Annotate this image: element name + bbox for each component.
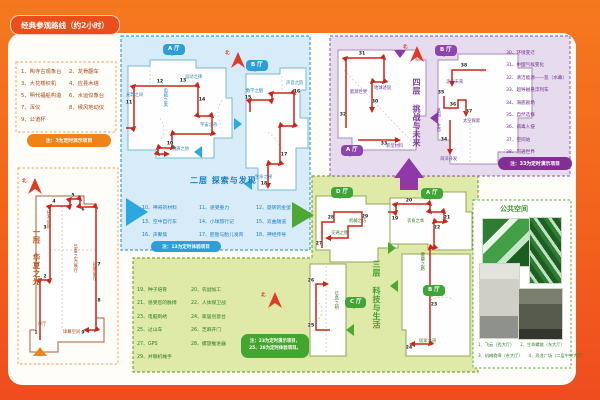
photo-dinosaur-skeleton — [479, 263, 520, 339]
route-stop-number: 13 — [180, 79, 186, 84]
floor4-hall-a-bubble: A 厅 — [341, 145, 363, 156]
route-stop-number: 19 — [392, 217, 398, 222]
public-space-title: 公共空间 — [500, 204, 528, 214]
floor4-exhibit-list: 30、环境变迁31、中国气候变化32、清洁能源——氢（水幕）33、超导磁悬浮列车… — [506, 50, 572, 162]
floor1-label-lobby: 序厅 — [38, 323, 47, 328]
list-item: 9、公道杯 — [21, 115, 69, 127]
floor1-label-temp: 短期展厅 — [91, 262, 96, 281]
list-item: 21、感受您的脉搏 — [137, 299, 191, 312]
list-item: 19、种子培育 — [137, 286, 191, 299]
list-item: 31、中国气候变化 — [506, 62, 572, 74]
route-stop-number: 37 — [466, 110, 472, 115]
floor3-area-transport: 交通之便 — [331, 232, 348, 237]
list-item: 34、海底剧场 — [506, 100, 572, 112]
route-stop-number: 14 — [199, 98, 205, 103]
list-item: 35、自然选择 — [506, 112, 572, 124]
route-stop-number: 35 — [438, 91, 444, 96]
floor2-area-matter: 物质之妙 — [172, 148, 189, 153]
floor3-title: 三层 科技与生活 — [371, 260, 382, 344]
caption-4: 4、恐龙广场（二层中央大厅） — [529, 353, 586, 359]
list-item: 18、神经传导 — [256, 231, 310, 245]
list-item: 13、空中自行车 — [142, 218, 199, 232]
floor3-area-info: 信息之桥 — [333, 291, 338, 310]
list-item: 4、应县木塔 — [69, 79, 114, 91]
route-stop-number: 30 — [372, 100, 378, 105]
floor4-title: 四层 挑战与未来 — [411, 78, 422, 170]
floor1-note-pill: 注：3为定时演示项目 — [27, 134, 111, 147]
list-item: 8、候风地动仪 — [69, 103, 114, 115]
route-stop-number: 29 — [362, 215, 368, 220]
list-item: 24、家居创意台 — [191, 313, 261, 326]
floor1-label-dome: 球幕空间 — [63, 331, 80, 336]
north-label: 北 — [403, 44, 408, 50]
floor3-note-pill: 注：23为定时演示项目， 25、28为定时体验项目。 — [241, 334, 309, 358]
route-stop-number: 23 — [431, 303, 437, 308]
list-item: 6、水运仪象台 — [69, 91, 114, 103]
list-item: 25、过山车 — [137, 326, 191, 339]
floor4-area-ocean: 海洋开发 — [440, 158, 457, 163]
floor4-area-materials: 新型材料 — [386, 145, 403, 150]
list-item: 3、大花楼织机 — [21, 79, 69, 91]
floor2-hall-b-bubble: B 厅 — [246, 60, 268, 71]
route-stop-number: 7 — [97, 263, 100, 268]
floor2-area-sound: 声音之韵 — [286, 82, 303, 87]
route-stop-number: 4 — [52, 200, 55, 205]
route-stop-number: 5 — [71, 194, 74, 199]
route-stop-number: 20 — [406, 199, 412, 204]
route-stop-number: 27 — [316, 242, 322, 247]
floor4-note-pill: 注：33为定时演示项目 — [498, 157, 572, 170]
route-map-poster: 经典参观路线（约2小时） — [0, 0, 600, 400]
route-stop-number: 3 — [43, 226, 46, 231]
route-stop-number: 15 — [245, 96, 251, 101]
route-stop-number: 21 — [444, 216, 450, 221]
list-item: 22、人体保卫战 — [191, 299, 261, 312]
floor4-hall-b-bubble: B 厅 — [435, 45, 457, 56]
floor2-exhibit-list: 10、神奇的材料11、感受重力12、旋转的金蛋13、空中自行车14、小球旅行记1… — [142, 204, 310, 245]
route-stop-number: 31 — [359, 52, 365, 57]
list-item: 14、小球旅行记 — [199, 218, 256, 232]
route-stop-number: 10 — [167, 142, 173, 147]
floor3-hall-d-bubble: D 厅 — [331, 187, 353, 198]
route-stop-number: 36 — [450, 103, 456, 108]
route-stop-number: 26 — [308, 279, 314, 284]
north-label: 北 — [261, 292, 266, 298]
floor2-area-light: 光影之间 — [126, 94, 143, 99]
route-stop-number: 8 — [97, 299, 100, 304]
floor4-area-future: 走向未来 — [446, 81, 463, 86]
route-stop-number: 17 — [281, 153, 287, 158]
floor2-hall-a-bubble: A 厅 — [163, 44, 185, 55]
route-stop-number: 38 — [461, 64, 467, 69]
caption-3: 3、机械旋律（东大厅） — [478, 353, 523, 359]
list-item: 5、明代福船构造 — [21, 91, 69, 103]
list-item: 2、龙骨翻车 — [69, 67, 114, 79]
floor3-area-machine: 机械之巧 — [349, 220, 366, 225]
floor4-area-energy: 能源世界 — [350, 91, 367, 96]
floor3-note-line1: 注：23为定时演示项目， — [250, 339, 300, 346]
route-stop-number: 9 — [81, 331, 84, 336]
north-label: 北 — [22, 178, 27, 184]
public-space-caption-row1: 1、飞云（西大厅） 2、生命螺旋（东大厅） — [478, 342, 565, 348]
floor2-note-pill: 注：13为定时体验项目 — [151, 241, 221, 252]
route-stop-number: 2 — [43, 275, 46, 280]
list-item: 12、旋转的金蛋 — [256, 204, 310, 218]
photo-green-structure — [529, 217, 562, 284]
list-item: 37、空间站 — [506, 137, 572, 149]
route-stop-number: 6 — [81, 208, 84, 213]
floor1-exhibit-list: 1、陶寺古观象台2、龙骨翻车3、大花楼织机4、应县木塔5、明代福船构造6、水运仪… — [21, 67, 114, 127]
route-stop-number: 1 — [34, 331, 37, 336]
floor3-note-line2: 25、28为定时体验项目。 — [249, 346, 301, 353]
list-item: 36、病毒入侵 — [506, 124, 572, 136]
list-item: 20、农副加工 — [191, 286, 261, 299]
floor3-area-health: 健康之路 — [419, 252, 424, 271]
public-space-caption-row2: 3、机械旋律（东大厅） 4、恐龙广场（二层中央大厅） — [478, 353, 586, 359]
floor1-label-hall: 华夏之光展厅 — [72, 244, 77, 273]
floor2-area-electromag: 电磁之奥 — [162, 88, 167, 107]
list-item: 29、并联机械手 — [137, 353, 191, 366]
floor1-title: 一层 华夏之光 — [31, 228, 42, 312]
floor2-area-life: 生命之秘 — [255, 176, 272, 181]
north-label: 北 — [225, 50, 230, 56]
route-stop-number: 18 — [261, 182, 267, 187]
floor4-area-space: 太空探索 — [463, 120, 480, 125]
floor3-hall-c-bubble: C 厅 — [345, 297, 366, 308]
floor3-hall-b-bubble: B 厅 — [423, 285, 445, 296]
list-item: 10、神奇的材料 — [142, 204, 199, 218]
route-stop-number: 28 — [328, 216, 334, 221]
floor2-area-math: 数学之魅 — [246, 90, 263, 95]
list-item: 27、GPS — [137, 340, 191, 353]
list-item: 11、感受重力 — [199, 204, 256, 218]
floor2-title: 二层 探索与发现 — [190, 175, 257, 186]
floor4-area-gene: 基因·生命 — [435, 108, 440, 133]
route-stop-number: 12 — [157, 80, 163, 85]
route-stop-number: 33 — [381, 142, 387, 147]
route-stop-number: 22 — [434, 226, 440, 231]
caption-1: 1、飞云（西大厅） — [478, 342, 514, 348]
route-stop-number: 32 — [340, 113, 346, 118]
route-stop-number: 16 — [294, 90, 300, 95]
list-item: 7、浑仪 — [21, 103, 69, 115]
route-stop-number: 11 — [126, 101, 132, 106]
list-item: 30、环境变迁 — [506, 50, 572, 62]
photo-relief-mural — [518, 288, 563, 340]
floor2-area-motion: 运动之律 — [185, 76, 202, 81]
photo-ceiling-sculpture — [482, 218, 530, 267]
floor3-area-food: 衣食之本 — [407, 220, 424, 225]
list-item: 1、陶寺古观象台 — [21, 67, 69, 79]
floor2-area-cosmos: 宇宙之奇 — [200, 124, 217, 129]
route-stop-number: 24 — [406, 346, 412, 351]
route-stop-number: 34 — [441, 138, 447, 143]
floor3-hall-a-bubble: A 厅 — [421, 188, 443, 199]
list-item: 32、清洁能源——氢（水幕） — [506, 75, 572, 87]
floor3-area-home: 居家之道 — [419, 340, 436, 345]
route-stop-number: 25 — [308, 324, 314, 329]
floor4-area-earth: 地球述说 — [374, 87, 391, 92]
list-item: 33、超导磁悬浮列车 — [506, 87, 572, 99]
caption-2: 2、生命螺旋（东大厅） — [520, 342, 565, 348]
list-item: 23、电脑刺绣 — [137, 313, 191, 326]
list-item: 15、双曲隧道 — [256, 218, 310, 232]
